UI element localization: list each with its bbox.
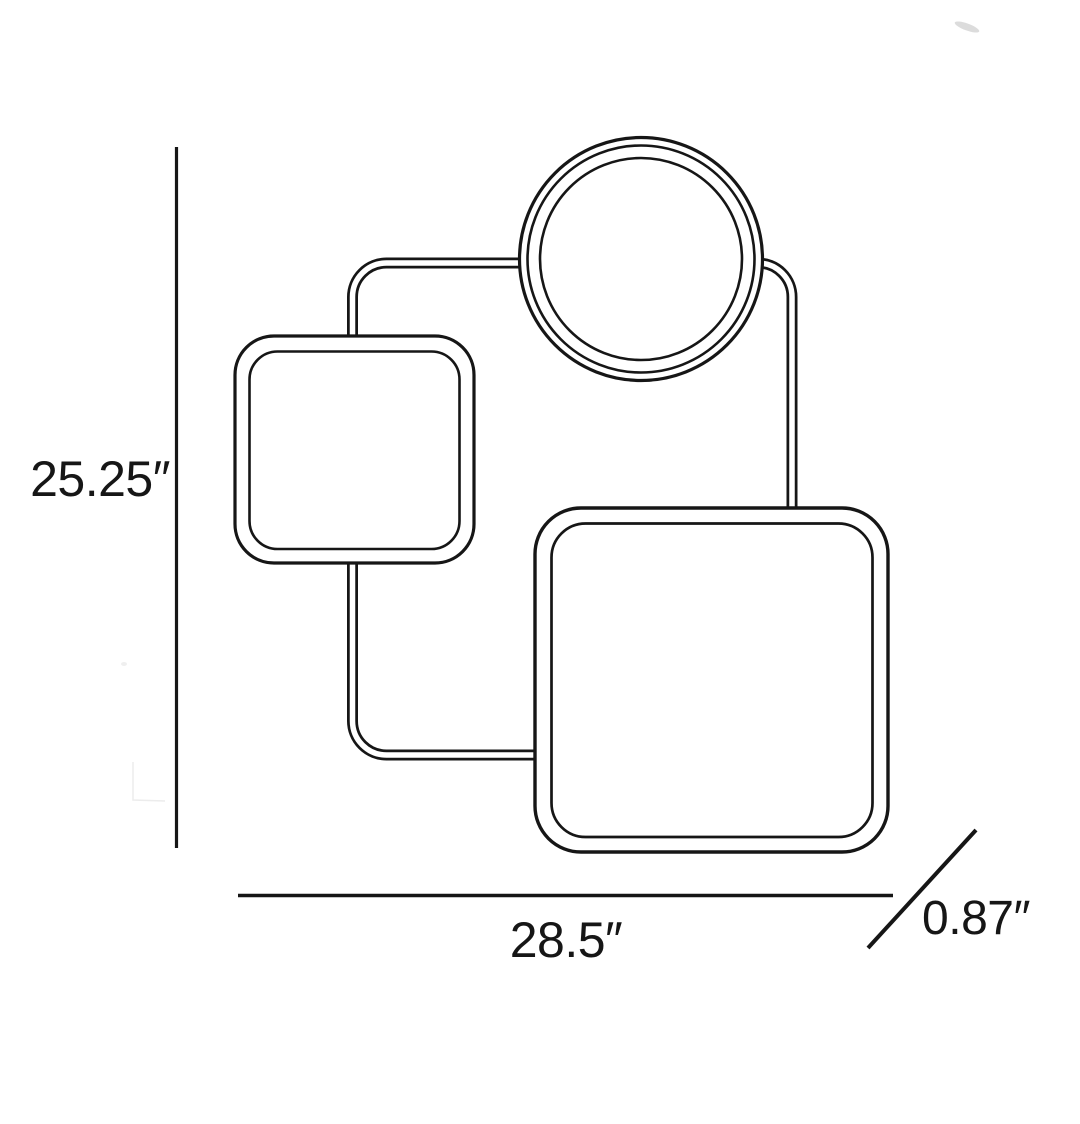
width-dimension-label: 28.5″ xyxy=(510,912,623,968)
circular-shade-outer-rim xyxy=(520,138,763,381)
large-square-outer-rim xyxy=(535,508,888,852)
depth-dimension-label: 0.87″ xyxy=(922,892,1030,945)
circular-shade xyxy=(520,138,763,381)
speck-artifact xyxy=(121,662,127,666)
drawing-canvas: 25.25″ 28.5″ 0.87″ xyxy=(0,0,1080,1124)
smudge-artifact xyxy=(954,19,981,34)
large-square-shade xyxy=(535,508,888,852)
dimension-drawing: 25.25″ 28.5″ 0.87″ xyxy=(0,0,1080,1124)
faint-line-artifact xyxy=(133,762,165,801)
height-dimension-label: 25.25″ xyxy=(30,451,170,507)
small-square-outer-rim xyxy=(235,336,474,563)
small-square-shade xyxy=(235,336,474,563)
